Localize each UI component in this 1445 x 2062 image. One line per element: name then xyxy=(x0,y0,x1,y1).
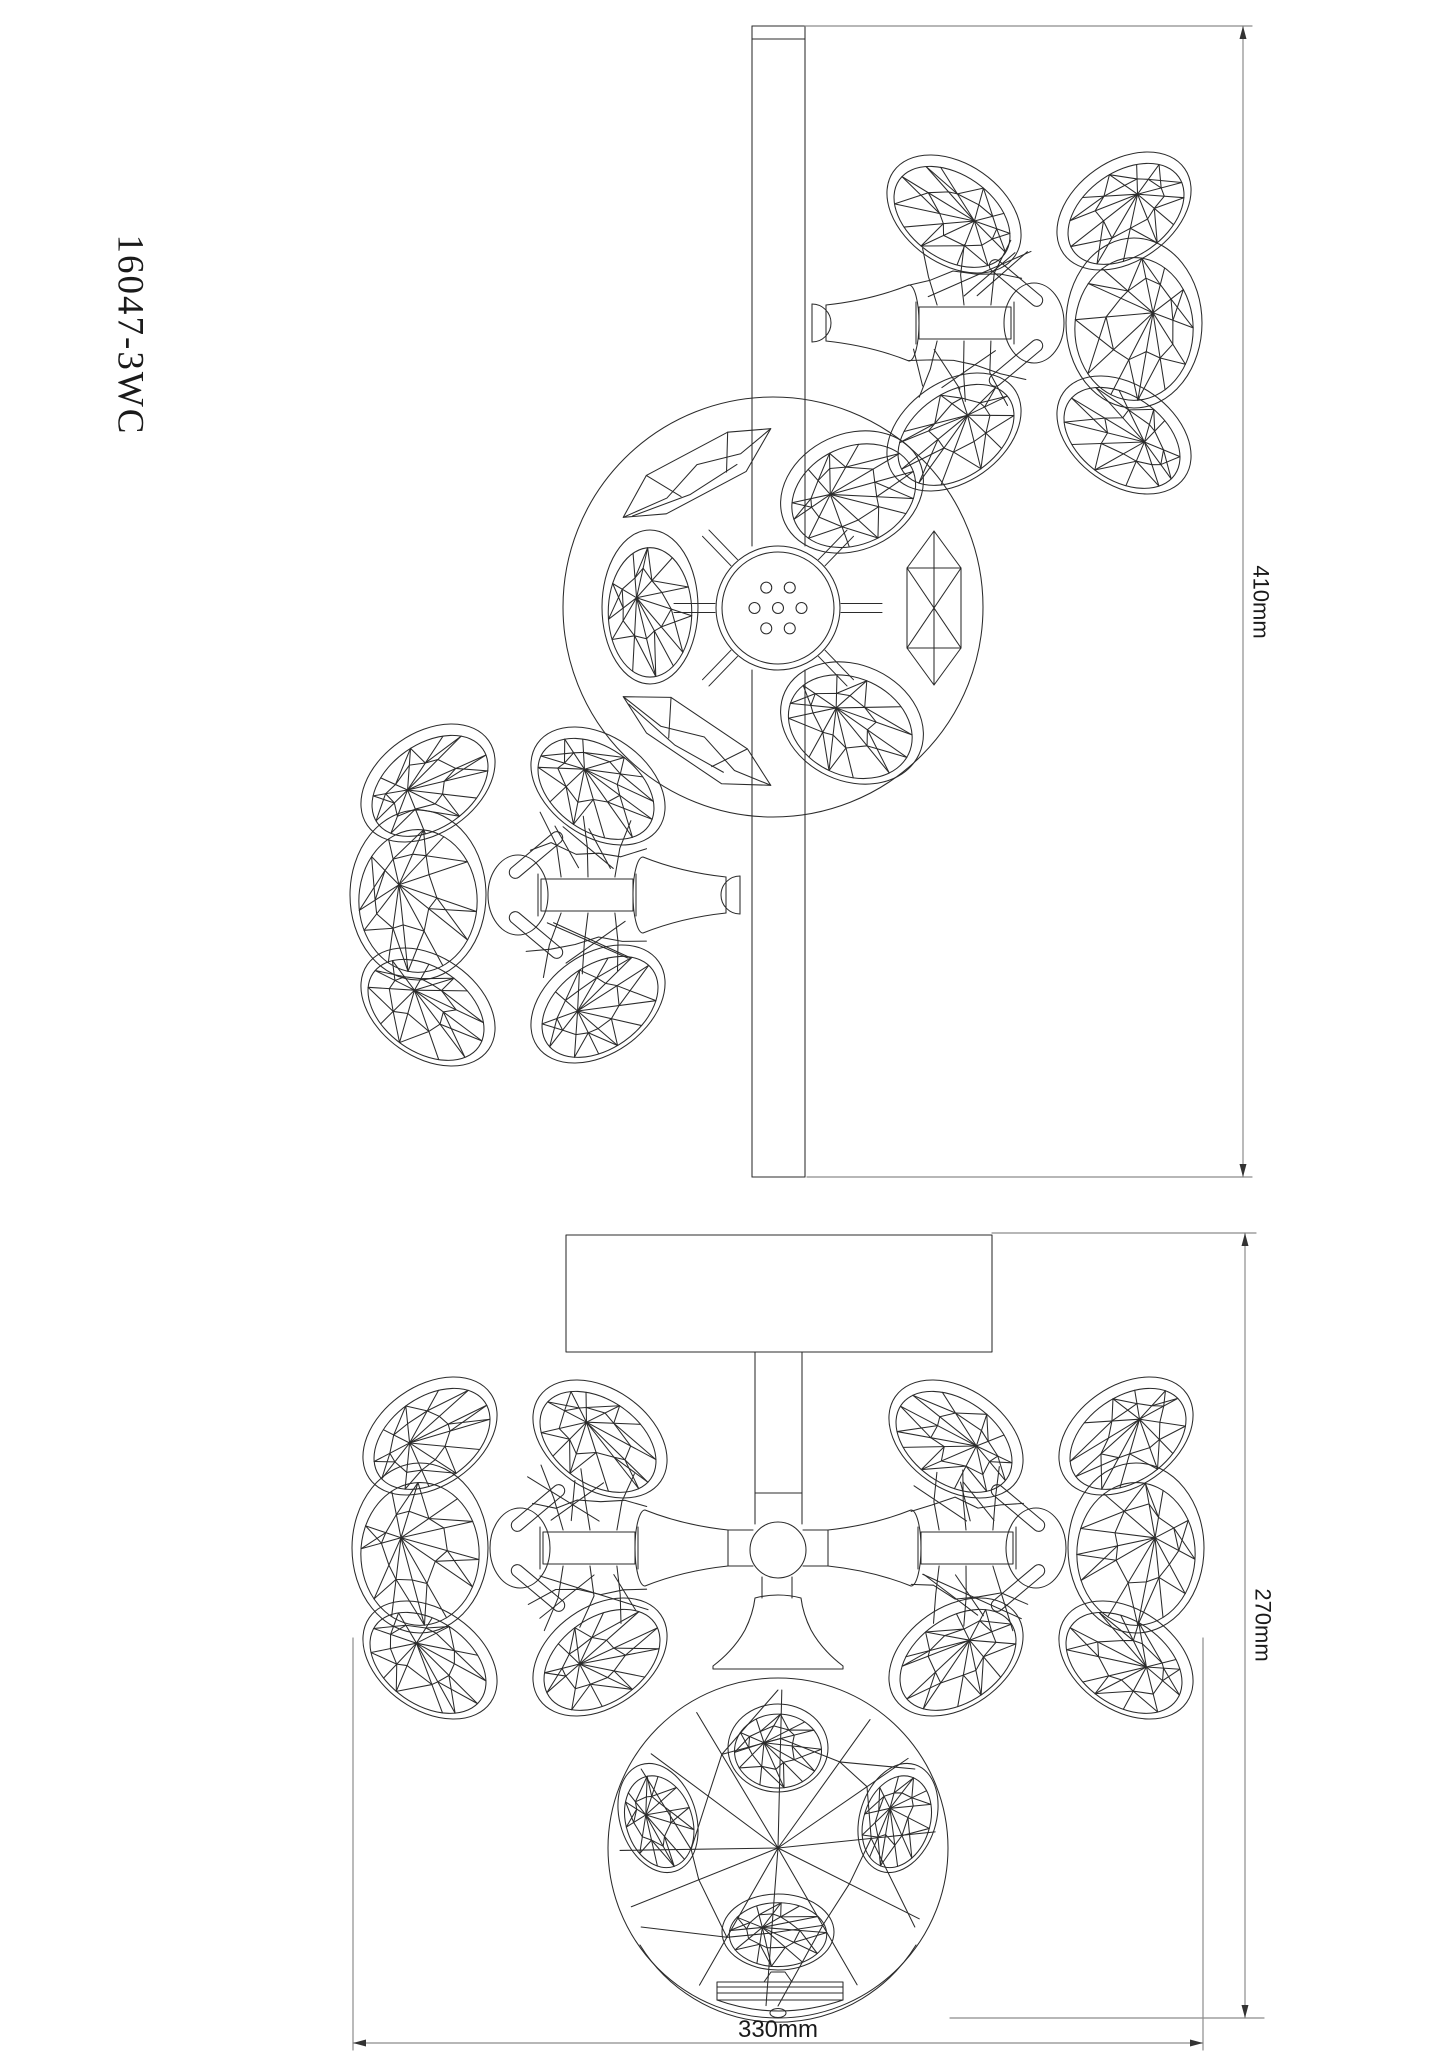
hub-ball xyxy=(750,1522,806,1578)
arms xyxy=(728,1530,828,1566)
front-view xyxy=(341,1235,1216,2022)
dimension-label-410: 410mm xyxy=(1249,565,1274,638)
cluster-upper-right xyxy=(812,128,1213,519)
cluster-left xyxy=(341,1353,728,1744)
mounting-bar xyxy=(752,26,805,1177)
stem xyxy=(755,1352,802,1524)
cluster-lower-left xyxy=(339,700,740,1091)
finial xyxy=(717,1972,843,2018)
dimension-410 xyxy=(805,26,1252,1177)
crystal-ball xyxy=(605,1678,952,2022)
ceiling-canopy xyxy=(566,1235,992,1352)
model-number: 16047-3WC xyxy=(110,235,151,436)
drawing-sheet: 16047-3WC 410mm 270mm 330mm xyxy=(0,0,1445,2062)
dimension-annotations xyxy=(353,26,1264,2050)
bell-socket xyxy=(713,1577,843,1669)
technical-drawing: 16047-3WC 410mm 270mm 330mm xyxy=(0,0,1445,2062)
edge-diamond-petal xyxy=(907,531,961,685)
dimension-label-270: 270mm xyxy=(1251,1588,1276,1661)
mounting-plate xyxy=(716,546,840,670)
dimension-label-330: 330mm xyxy=(738,2016,818,2043)
dimension-270 xyxy=(950,1233,1264,2018)
center-crystal-flower xyxy=(602,408,961,807)
cluster-right xyxy=(828,1353,1215,1744)
top-view xyxy=(339,26,1214,1177)
